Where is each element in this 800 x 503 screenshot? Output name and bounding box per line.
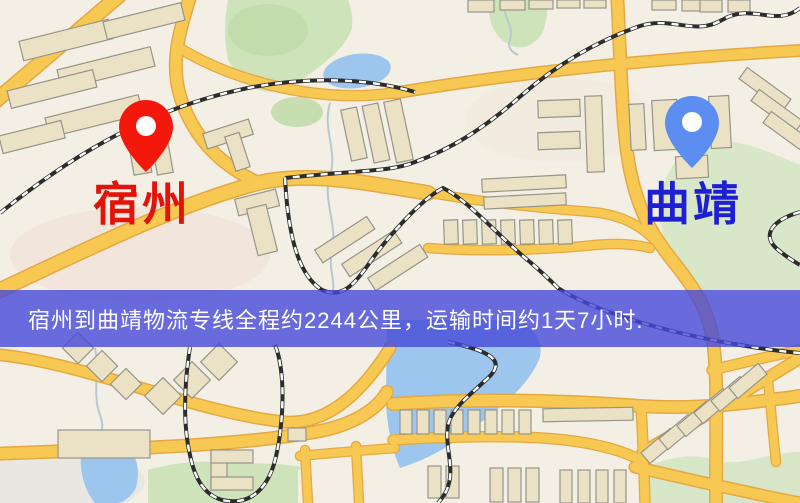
destination-city-label: 曲靖 bbox=[644, 181, 742, 227]
origin-pin-icon bbox=[119, 100, 173, 172]
route-map: 宿州 曲靖 宿州到曲靖物流专线全程约2244公里，运输时间约1天7小时. bbox=[0, 0, 800, 503]
route-info-banner: 宿州到曲靖物流专线全程约2244公里，运输时间约1天7小时. bbox=[0, 290, 800, 347]
map-image bbox=[0, 0, 800, 503]
route-info-text: 宿州到曲靖物流专线全程约2244公里，运输时间约1天7小时. bbox=[0, 303, 644, 335]
destination-pin-icon bbox=[665, 96, 719, 168]
origin-city-label: 宿州 bbox=[93, 181, 191, 227]
